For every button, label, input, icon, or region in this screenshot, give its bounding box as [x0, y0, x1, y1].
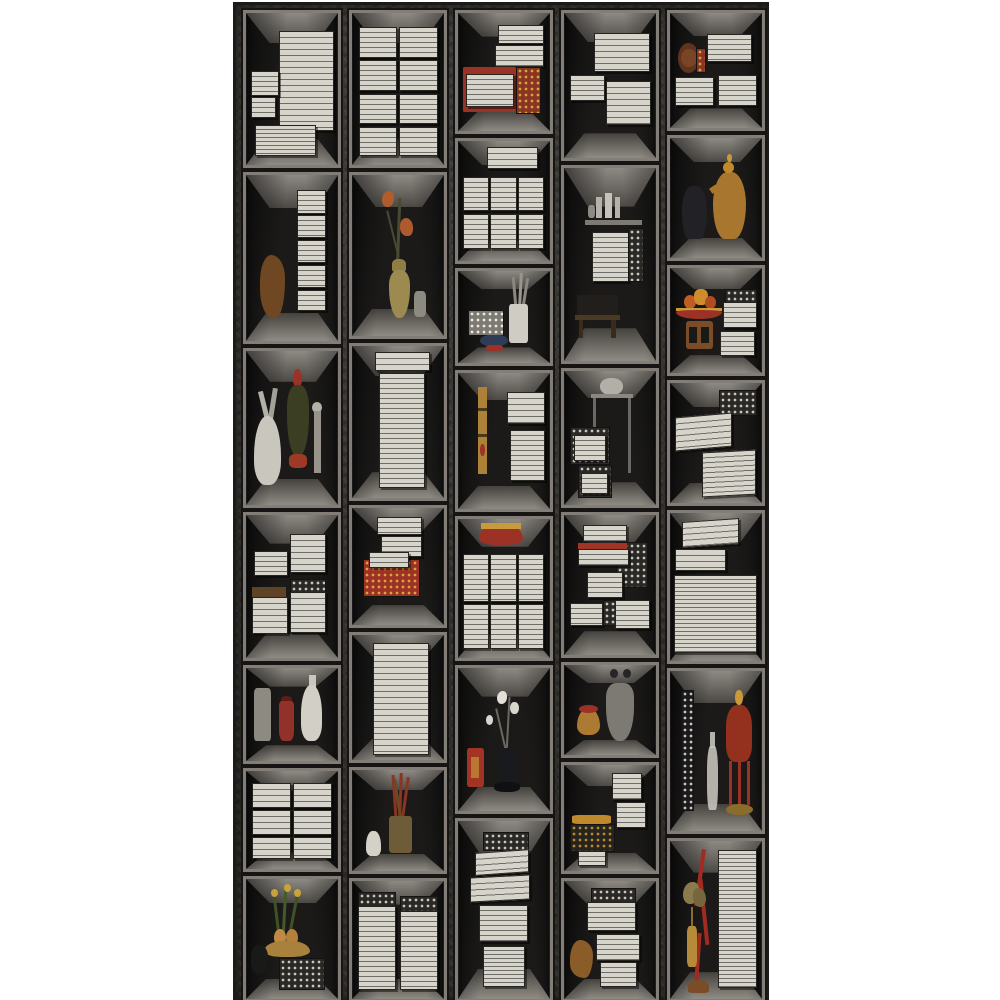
book-stack — [399, 27, 438, 58]
cell-l-shaped-book-pile — [667, 380, 765, 506]
book-stack — [400, 911, 438, 991]
book-stack — [358, 906, 396, 991]
cell-floor — [564, 133, 656, 158]
rod-shape — [611, 320, 616, 337]
book-stack — [470, 875, 530, 903]
book-stack — [293, 783, 332, 809]
black-jar — [251, 945, 268, 974]
cell-book-grid-with-drum — [455, 516, 553, 661]
book-stack — [578, 549, 629, 566]
book-stack — [682, 518, 739, 548]
book-stack — [596, 934, 639, 961]
cell-ceiling — [246, 879, 338, 903]
gold-teapot — [713, 172, 746, 239]
patterned-box — [483, 832, 529, 852]
cell-books-red-edged — [561, 512, 659, 658]
book-stack — [359, 94, 397, 125]
white-figurine — [366, 831, 381, 856]
object-shape — [701, 327, 708, 343]
book-stack — [252, 597, 288, 635]
book-stack — [251, 97, 276, 119]
cell-ceiling — [246, 668, 338, 687]
rod-shape — [481, 523, 521, 529]
cell-floor — [564, 740, 656, 755]
book-stack — [490, 554, 517, 602]
magnolia-bloom — [486, 715, 493, 725]
censer — [287, 385, 308, 456]
gold-tassel — [687, 926, 696, 967]
book-stack — [297, 190, 327, 214]
cell-rootwood-and-book-column — [243, 172, 341, 344]
book-stack — [720, 331, 755, 356]
book-stack — [487, 147, 539, 169]
cell-floor — [352, 854, 444, 871]
lacquer-gold-box — [570, 824, 614, 851]
shell-inlay-box — [468, 310, 504, 336]
cell-floor — [670, 238, 762, 258]
rod-shape — [478, 408, 486, 411]
book-stack — [375, 352, 430, 371]
jade-ornament — [600, 378, 623, 395]
rod-shape — [496, 708, 507, 750]
box-lid — [252, 587, 286, 597]
book-stack — [518, 554, 544, 602]
object-shape — [727, 154, 732, 162]
book-stack — [490, 177, 517, 211]
book-stack — [570, 75, 604, 100]
book-stack — [252, 810, 292, 835]
book-stack — [359, 27, 397, 58]
small-book-bundles — [255, 125, 316, 156]
cell-bamboo-flute-and-books — [455, 370, 553, 512]
book-stack — [483, 946, 525, 987]
cell-book-tower — [349, 343, 447, 501]
cell-curio-shelf — [561, 165, 659, 364]
cell-floor — [564, 631, 656, 655]
ornate-vase — [606, 683, 634, 741]
book-stack — [518, 604, 544, 649]
book-stack — [479, 905, 528, 943]
black-vase — [498, 748, 515, 785]
book-stack — [570, 603, 602, 626]
book-stack — [518, 177, 544, 211]
cell-shelf-books — [561, 10, 659, 161]
book-stack — [507, 392, 545, 424]
cell-flat-book-piles — [455, 818, 553, 1000]
book-stack — [297, 290, 327, 312]
small-jar — [414, 291, 426, 317]
book-stack — [359, 127, 397, 156]
book-stack — [587, 902, 636, 931]
cell-ceiling — [670, 13, 762, 36]
cell-book-grid-with-shelf — [455, 138, 553, 264]
book-stack — [718, 75, 757, 106]
book-stack — [612, 773, 643, 799]
book-stack — [490, 214, 517, 248]
book-stack — [463, 177, 490, 211]
book-stack — [581, 473, 608, 494]
magnolia-bloom — [497, 691, 507, 704]
page-background — [0, 0, 1000, 1000]
rod-shape — [628, 398, 630, 473]
cell-books-and-lingzhi — [561, 878, 659, 1000]
object-shape — [588, 205, 595, 219]
book-stack — [606, 81, 650, 125]
finial — [735, 690, 742, 704]
cell-magnolia-and-red-cup — [455, 665, 553, 814]
brush-pot — [389, 816, 412, 852]
cell-two-book-towers — [349, 878, 447, 1000]
red-stand — [289, 454, 306, 468]
rod-shape — [738, 761, 741, 806]
rod-shape — [579, 320, 584, 337]
red-stand — [486, 345, 503, 351]
footed-dish — [676, 310, 722, 319]
stand-top — [591, 394, 633, 398]
cell-long-book-piles — [667, 510, 765, 664]
patterned-tube-case — [681, 690, 694, 810]
book-stack — [297, 240, 327, 264]
rootwood-sculpture — [260, 255, 285, 318]
cell-floor — [352, 605, 444, 625]
book-stack — [475, 849, 529, 876]
book-stack — [252, 783, 292, 809]
cell-floor — [246, 745, 338, 761]
rod-shape — [691, 907, 693, 926]
cell-vase-censer-garniture — [243, 348, 341, 508]
book-stack — [592, 232, 630, 282]
object-shape — [681, 49, 697, 67]
basket-base — [726, 804, 753, 815]
book-stack — [463, 214, 490, 248]
cell-ceiling — [246, 351, 338, 382]
book-stack — [297, 215, 327, 239]
cell-lily-vase — [349, 172, 447, 339]
cell-round-box-and-books — [667, 10, 765, 131]
book-stack — [675, 549, 727, 572]
lingzhi-fungus — [570, 940, 593, 978]
gilt-brocade — [516, 67, 541, 114]
shallow-dish — [264, 941, 310, 957]
snuff-bottle — [605, 193, 611, 218]
blue-cushion — [480, 335, 508, 345]
orange-lily — [400, 218, 413, 236]
gilt-leaf — [693, 888, 706, 907]
object-shape — [494, 782, 520, 792]
lacquer-box — [577, 295, 618, 314]
book-stack — [377, 517, 422, 534]
book-stack — [399, 60, 438, 91]
rod-shape — [478, 434, 486, 437]
book-stack — [583, 525, 626, 542]
cell-book-grid-2x4 — [349, 10, 447, 168]
patterned-box — [696, 48, 706, 73]
rod-shape — [747, 761, 750, 806]
red-lacquer-cup — [279, 701, 294, 740]
cell-floor — [458, 486, 550, 509]
long-book-pile — [674, 575, 757, 652]
book-stack — [252, 837, 292, 860]
magnolia-bloom — [510, 702, 518, 713]
cell-ceiling — [458, 271, 550, 289]
cell-tall-stand-and-cases — [561, 368, 659, 508]
cell-scholar-curios — [667, 668, 765, 834]
book-stack — [702, 450, 756, 498]
book-stack — [498, 25, 543, 45]
book-stack — [707, 34, 752, 62]
cell-fruit-dish-and-books — [667, 265, 765, 376]
book-stack — [578, 851, 607, 866]
rod-shape — [729, 761, 732, 806]
cell-book-grid — [243, 768, 341, 872]
rod-shape — [471, 757, 479, 778]
book-stack — [495, 45, 544, 67]
cell-narcissus-still-life — [243, 876, 341, 1000]
slender-vase — [314, 411, 320, 473]
tall-book-stack — [373, 643, 428, 755]
book-stack — [290, 592, 326, 633]
book-stack — [675, 77, 715, 105]
book-stack — [594, 33, 649, 71]
tall-book-tower — [379, 373, 425, 487]
cell-floor — [246, 313, 338, 341]
shelf-board — [585, 220, 642, 225]
book-stack — [359, 60, 397, 91]
cell-floor — [670, 108, 762, 128]
cell-books-and-red-case — [455, 10, 553, 134]
book-stack — [254, 551, 288, 576]
book-stack — [510, 430, 544, 481]
book-stack — [297, 265, 327, 289]
cell-gold-lidded-box-books — [561, 762, 659, 874]
cell-ceiling — [670, 138, 762, 162]
gourd-vase — [254, 416, 281, 485]
cell-floor — [246, 634, 338, 658]
cell-three-vases — [243, 665, 341, 764]
tall-book-stack — [279, 31, 333, 130]
book-stack — [399, 127, 438, 156]
book-stack — [293, 810, 332, 835]
book-stack — [369, 552, 410, 568]
book-stack — [463, 554, 490, 602]
crystal-bottle — [707, 746, 718, 810]
tall-book-stack — [718, 850, 757, 988]
cell-writing-implements — [455, 268, 553, 366]
book-stack — [399, 94, 438, 125]
snuff-bottle — [615, 197, 621, 218]
object-shape — [480, 444, 485, 456]
mother-of-pearl-box — [279, 958, 325, 990]
book-stack — [615, 600, 650, 629]
crackle-bottle-vase — [301, 685, 322, 741]
book-stack — [616, 802, 647, 828]
object-shape — [579, 705, 598, 713]
base — [688, 980, 708, 993]
book-stack — [290, 534, 326, 573]
bamboo-flute — [478, 387, 486, 474]
magnolia-branch — [505, 697, 510, 754]
cell-book-bundles — [243, 512, 341, 661]
book-stack — [463, 604, 490, 649]
cell-books-red-brocade-box — [349, 505, 447, 628]
book-stack — [587, 572, 623, 598]
book-stack — [574, 435, 606, 461]
book-stack — [293, 837, 332, 860]
cell-floor — [670, 355, 762, 373]
cell-brushpot-with-sticks — [349, 767, 447, 874]
cell-coral-pendant-and-books — [667, 838, 765, 1000]
book-stack — [490, 604, 517, 649]
gold-lid — [572, 815, 611, 825]
book-stack — [251, 71, 280, 96]
object-shape — [689, 327, 696, 343]
dark-pitcher — [682, 186, 707, 239]
book-stack — [600, 962, 637, 986]
cell-floor — [458, 347, 550, 363]
book-stack — [723, 302, 756, 328]
snuff-bottle — [596, 197, 602, 218]
brush-pot — [509, 304, 528, 343]
cell-tall-book-stack — [349, 632, 447, 763]
cell-ornate-vase-and-cup — [561, 662, 659, 758]
cell-large-book-stack — [243, 10, 341, 168]
book-stack — [466, 74, 514, 107]
cabinet-wallpaper-panel — [233, 2, 769, 1000]
cell-ceiling — [670, 268, 762, 289]
red-basket — [726, 705, 752, 763]
stone-cylinder-vase — [254, 688, 271, 740]
book-stack — [518, 214, 544, 248]
book-stack — [675, 413, 732, 452]
cell-ceiling — [352, 770, 444, 790]
cell-teapot-and-pitcher — [667, 135, 765, 261]
patterned-box — [628, 228, 644, 282]
